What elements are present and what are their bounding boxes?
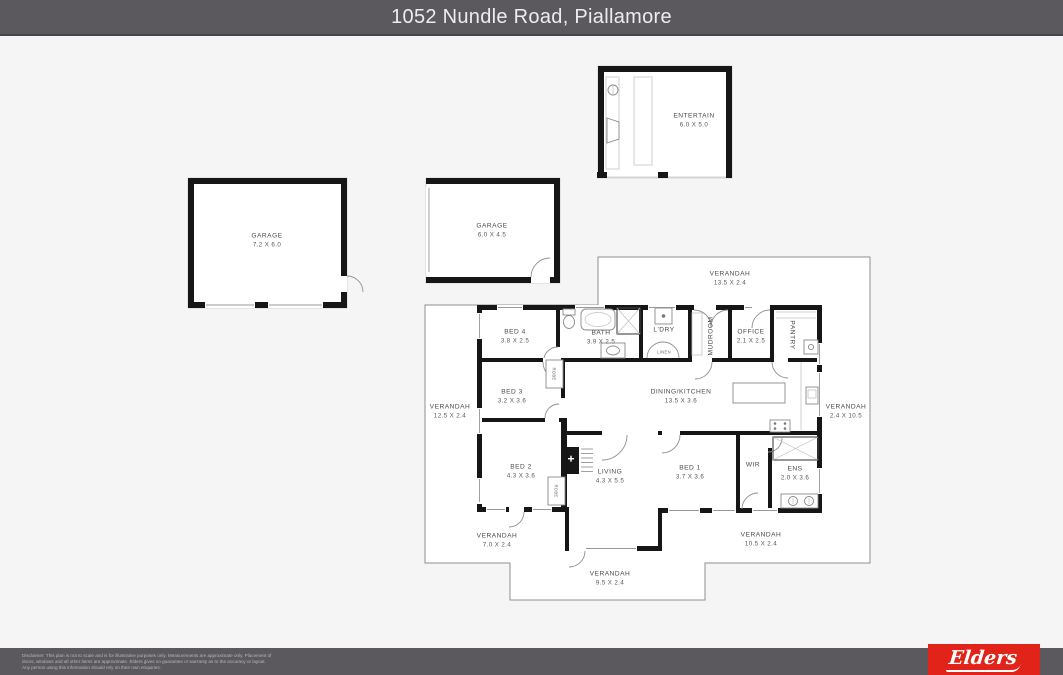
- entertain-building: [597, 66, 732, 178]
- side-door: [341, 276, 363, 292]
- verandah-post: [658, 172, 668, 178]
- toilet-icon: [564, 316, 575, 329]
- garage-door-opening: [426, 186, 432, 274]
- robe-icon: [548, 477, 565, 505]
- footer-bar: Disclaimer: This plan is not to scale an…: [0, 648, 1063, 675]
- toilet-icon: [563, 309, 575, 315]
- floorplan-page: 1052 Nundle Road, Piallamore .wall{fill:…: [0, 0, 1063, 675]
- verandah-post: [597, 172, 607, 178]
- floorplan-drawing: .wall{fill:#161616;} .env{fill:#ffffff;s…: [0, 0, 1063, 675]
- garage-small: [426, 178, 560, 283]
- stove-icon: [770, 420, 790, 432]
- disclaimer-text: Disclaimer: This plan is not to scale an…: [22, 653, 271, 672]
- island-bench-icon: [733, 383, 785, 403]
- garage-large: [188, 178, 363, 308]
- elders-logo: Elders: [928, 644, 1040, 675]
- robe-icon: [546, 360, 563, 388]
